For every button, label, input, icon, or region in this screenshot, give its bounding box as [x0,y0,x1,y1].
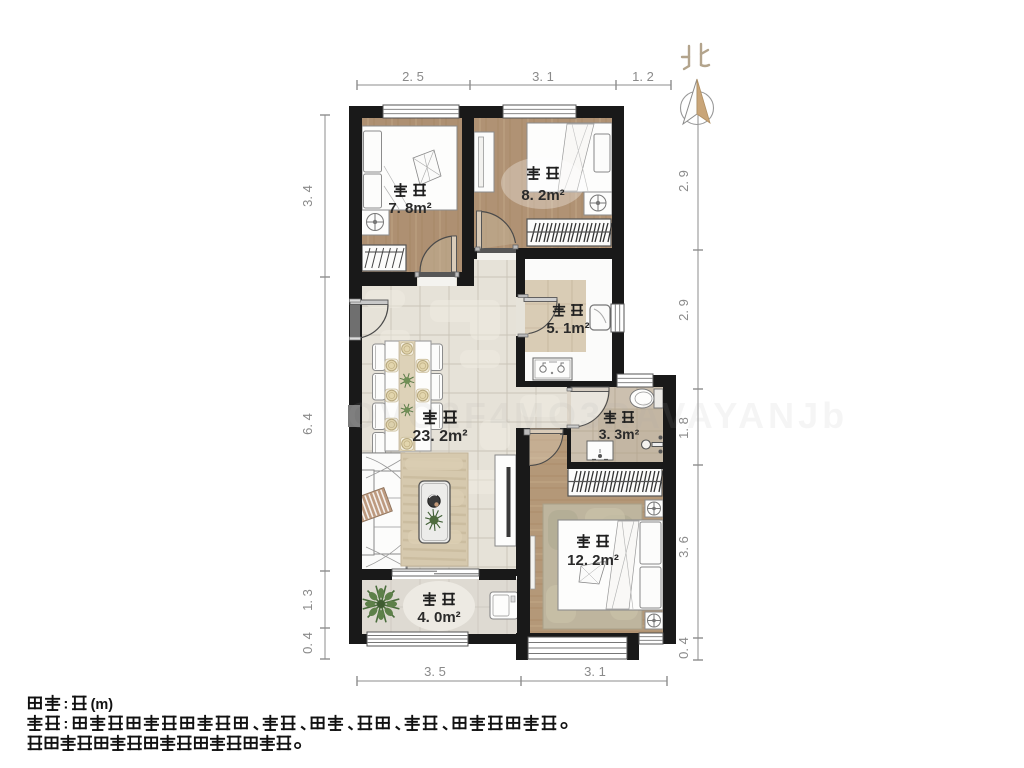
svg-text:6. 4: 6. 4 [300,413,315,435]
svg-text:3. 3m²: 3. 3m² [599,426,640,442]
svg-text:2. 9: 2. 9 [676,170,691,192]
svg-text:7. 8m²: 7. 8m² [388,200,431,217]
svg-text:3. 4: 3. 4 [300,185,315,207]
svg-text::: : [63,716,68,733]
svg-text:0. 4: 0. 4 [676,637,691,659]
svg-text:2. 5: 2. 5 [402,69,424,84]
svg-text:4. 0m²: 4. 0m² [417,609,460,626]
svg-text:(m): (m) [91,697,114,713]
svg-text:1. 3: 1. 3 [300,589,315,611]
svg-text:3. 1: 3. 1 [584,664,606,679]
svg-text:5. 1m²: 5. 1m² [546,320,589,337]
svg-text:23. 2m²: 23. 2m² [412,428,467,445]
svg-text:3. 6: 3. 6 [676,536,691,558]
svg-text:3. 5: 3. 5 [424,664,446,679]
svg-text:3. 1: 3. 1 [532,69,554,84]
svg-text:2. 9: 2. 9 [676,299,691,321]
svg-text:12. 2m²: 12. 2m² [567,552,619,569]
svg-text:8. 2m²: 8. 2m² [521,187,564,204]
svg-text::: : [63,696,68,713]
svg-text:1. 2: 1. 2 [632,69,654,84]
svg-text:0. 4: 0. 4 [300,632,315,654]
